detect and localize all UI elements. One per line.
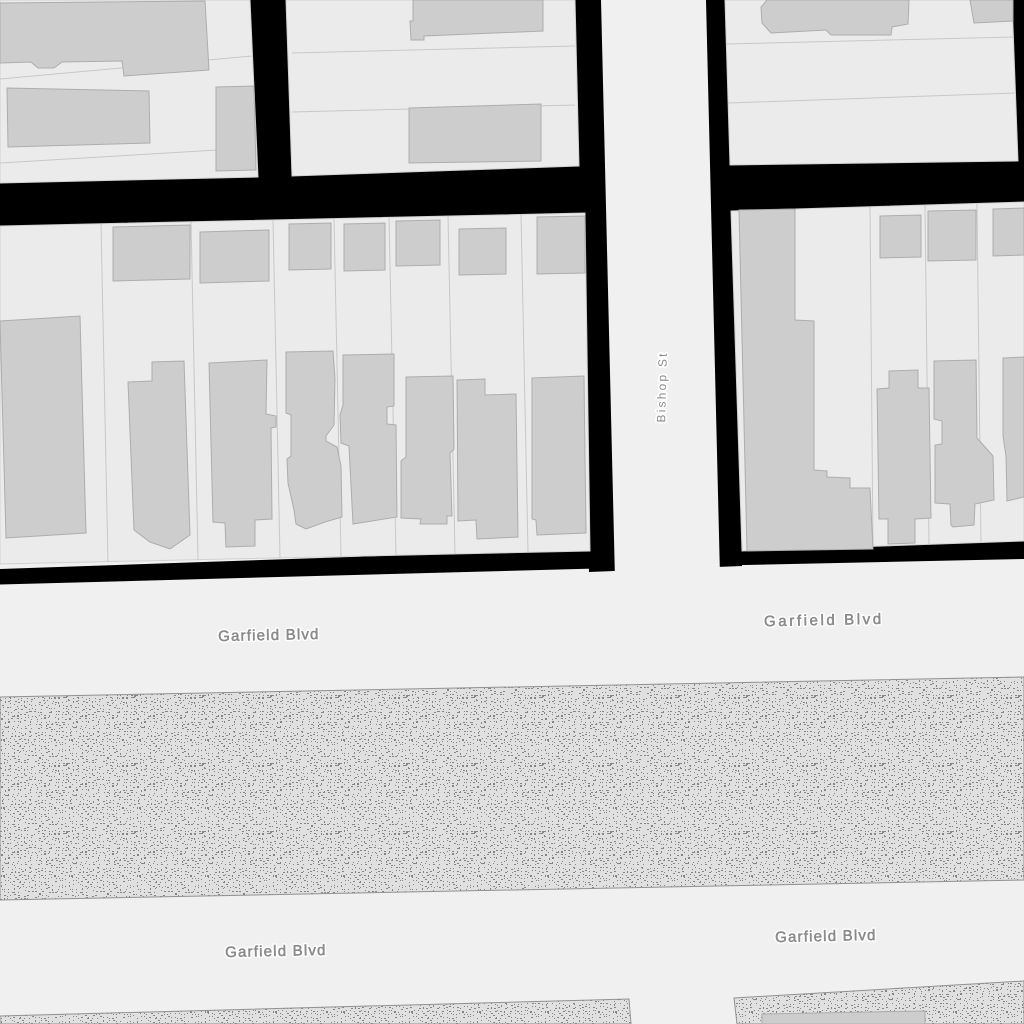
svg-text:Garfield Blvd: Garfield Blvd <box>764 611 884 631</box>
svg-text:Garfield Blvd: Garfield Blvd <box>775 927 877 946</box>
svg-text:Garfield Blvd: Garfield Blvd <box>225 942 327 961</box>
svg-text:Garfield Blvd: Garfield Blvd <box>218 626 320 645</box>
svg-text:Bishop St: Bishop St <box>654 351 670 422</box>
